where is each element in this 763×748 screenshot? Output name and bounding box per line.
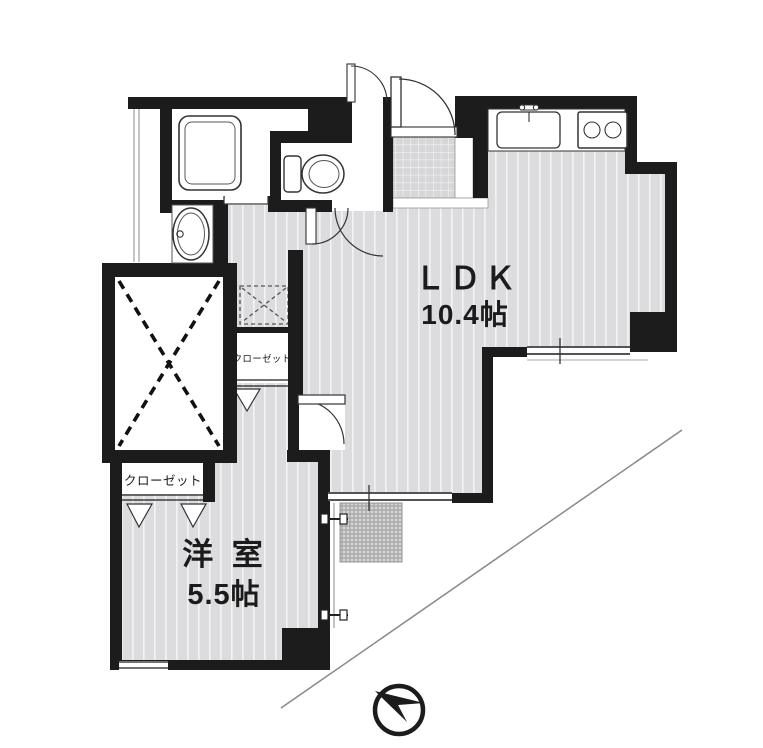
north-arrow (375, 686, 424, 734)
toilet-room (281, 143, 383, 200)
two-burner-stove (578, 112, 627, 148)
closet-hall-label: クローゼット (233, 353, 292, 365)
wash-basin (173, 208, 209, 260)
floorplan-drawing: クローゼット クローゼット (0, 0, 763, 748)
western-room-door (298, 395, 345, 450)
toilet (284, 155, 344, 193)
ldk-size-label: 10.4帖 (421, 299, 509, 330)
meter-box-door (347, 64, 387, 143)
bathroom (172, 109, 270, 196)
ldk-label: ＬＤＫ (415, 261, 520, 296)
western-room-size-label: 5.5帖 (187, 578, 260, 611)
service-space-hatch (340, 503, 402, 562)
western-room-label: 洋 室 (182, 537, 268, 572)
kitchen (488, 105, 627, 151)
entrance-door (391, 77, 457, 137)
void-area-x (115, 277, 223, 450)
floorplan-page: クローゼット クローゼット (0, 0, 763, 748)
washroom (172, 205, 213, 263)
bathtub (179, 116, 241, 190)
western-room-window (119, 661, 168, 670)
closet-main-label: クローゼット (124, 474, 202, 488)
